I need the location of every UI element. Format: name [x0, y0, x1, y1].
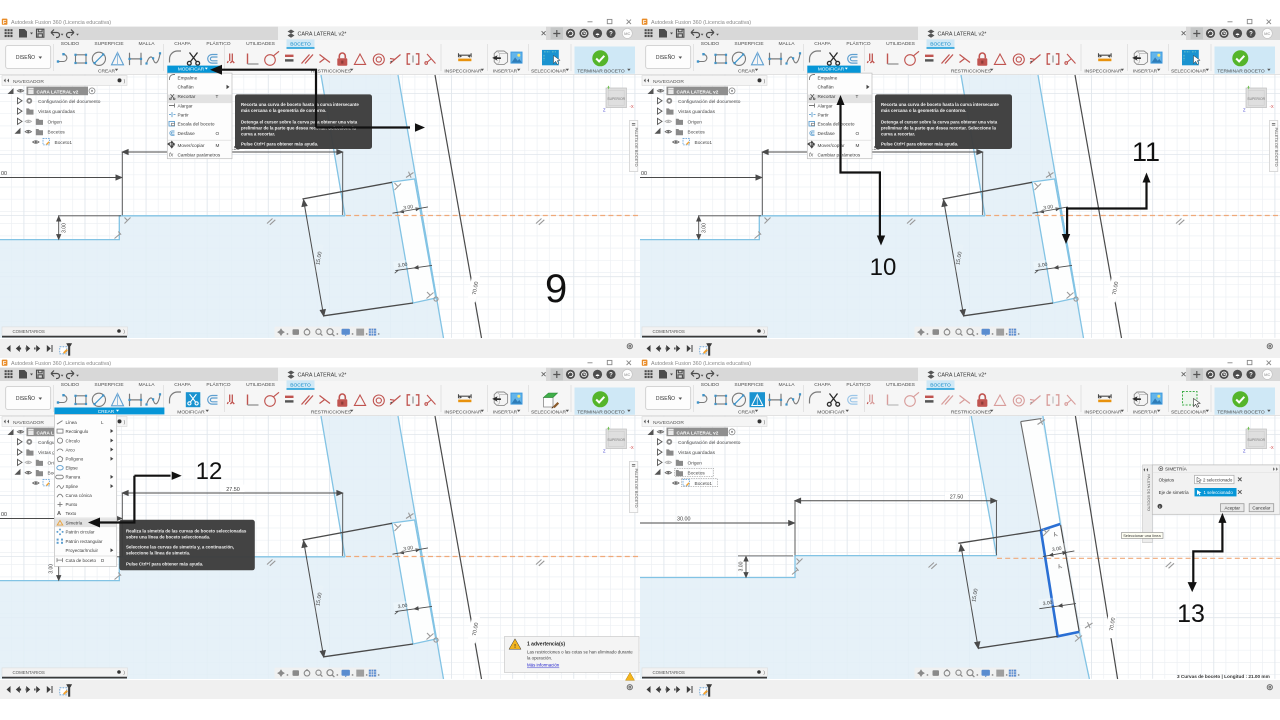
svg-text:3.00: 3.00	[49, 564, 55, 574]
svg-text:2 seleccionado: 2 seleccionado	[1203, 477, 1233, 482]
svg-text:3.00: 3.00	[702, 223, 708, 233]
svg-text:Cancelar: Cancelar	[1252, 505, 1271, 510]
svg-text:1 seleccionado: 1 seleccionado	[1204, 490, 1234, 495]
svg-text:Aceptar: Aceptar	[1224, 505, 1240, 510]
svg-text:3.00: 3.00	[62, 223, 68, 233]
svg-text:10: 10	[870, 254, 897, 281]
svg-text:Las restricciones o las cotas: Las restricciones o las cotas se han eli…	[527, 650, 633, 655]
svg-text:Más información: Más información	[527, 663, 560, 668]
svg-text:la operación.: la operación.	[527, 655, 552, 660]
svg-text:SIMETRÍA: SIMETRÍA	[1165, 466, 1188, 472]
svg-text:Objetos: Objetos	[1159, 478, 1175, 483]
svg-text:PALETA DE BOCETO: PALETA DE BOCETO	[1147, 474, 1151, 511]
svg-text:3 Curvas de boceto | Longitud: 3 Curvas de boceto | Longitud : 21.00 mm	[1177, 674, 1270, 679]
svg-text:i: i	[1159, 505, 1160, 509]
svg-text:13: 13	[1177, 600, 1205, 628]
svg-text:9: 9	[545, 267, 567, 311]
svg-text:Eje de simetría: Eje de simetría	[1159, 490, 1190, 495]
svg-text:Seleccionar una línea: Seleccionar una línea	[1123, 533, 1161, 538]
svg-text:!: !	[514, 644, 516, 650]
svg-text:11: 11	[1132, 137, 1160, 167]
svg-text:12: 12	[196, 458, 223, 485]
svg-text:1 advertencia(s): 1 advertencia(s)	[527, 642, 565, 648]
